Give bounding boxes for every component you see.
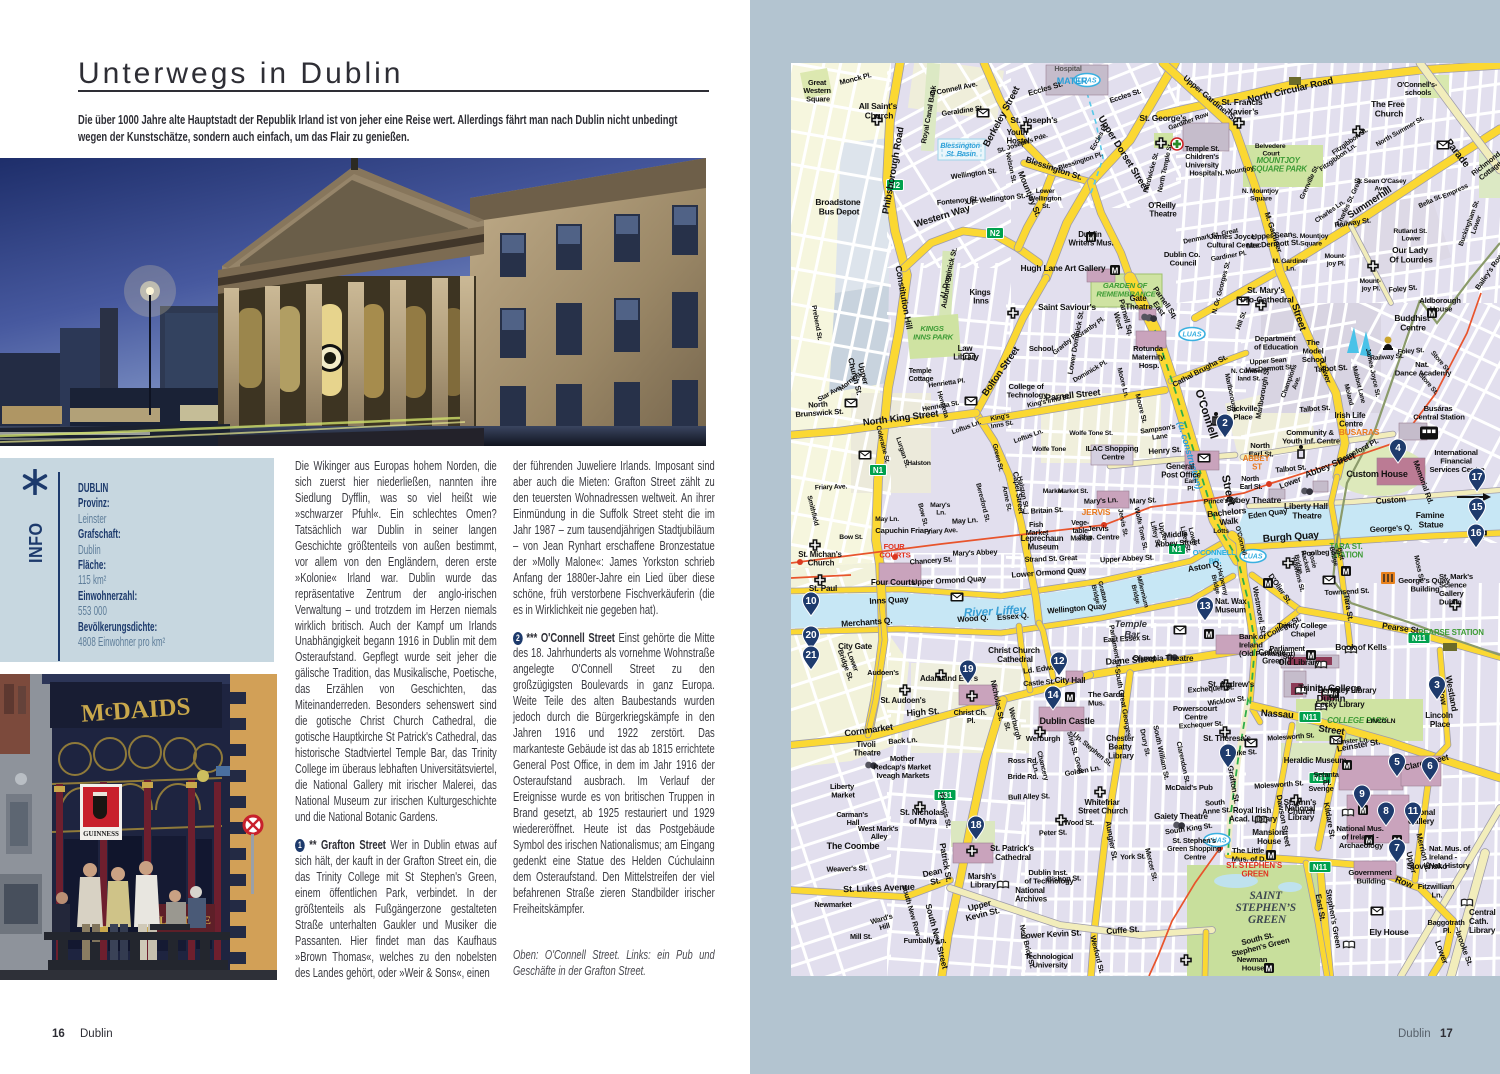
svg-text:Famine Statue: Famine Statue (1416, 510, 1447, 529)
svg-text:Whitefriar Street Church: Whitefriar Street Church (1078, 798, 1128, 816)
svg-text:Heraldic Museum: Heraldic Museum (1284, 756, 1347, 765)
svg-text:Newmarket: Newmarket (814, 900, 852, 909)
svg-text:20: 20 (805, 630, 817, 641)
svg-text:Lotts: Lotts (1213, 528, 1229, 535)
svg-text:N11: N11 (1313, 863, 1328, 872)
svg-text:PEARSE STATION: PEARSE STATION (1418, 628, 1484, 637)
svg-text:Mary's Ln.: Mary's Ln. (1084, 495, 1119, 506)
svg-text:N1: N1 (873, 466, 884, 475)
svg-text:Friary Ave.: Friary Ave. (815, 483, 848, 491)
svg-text:Four Courts: Four Courts (871, 578, 916, 587)
svg-text:Slovensko: Slovensko (1407, 861, 1448, 871)
svg-text:National Archives: National Archives (1015, 886, 1048, 904)
svg-text:North Earl St.: North Earl St. (1240, 476, 1263, 491)
svg-text:St. Mary's Pro-Cathedral: St. Mary's Pro-Cathedral (1240, 285, 1293, 304)
svg-text:Ely House: Ely House (1369, 927, 1409, 937)
svg-text:11: 11 (1408, 806, 1419, 817)
svg-text:Weaver's St.: Weaver's St. (826, 863, 867, 873)
svg-text:Werburgh: Werburgh (1026, 734, 1061, 743)
svg-text:9: 9 (1359, 789, 1365, 800)
svg-text:14: 14 (1047, 690, 1059, 701)
svg-text:Nat. Wax Museum: Nat. Wax Museum (1215, 597, 1249, 615)
svg-text:The Coombe: The Coombe (827, 841, 880, 851)
svg-text:Liberty Market: Liberty Market (830, 782, 856, 799)
svg-text:May Ln.: May Ln. (875, 516, 899, 523)
svg-text:3: 3 (1434, 680, 1440, 691)
svg-text:Tivoli Theatre: Tivoli Theatre (853, 740, 881, 758)
svg-text:1: 1 (1225, 748, 1231, 759)
svg-text:Gaiety Theatre: Gaiety Theatre (1154, 812, 1208, 821)
svg-text:MOUNTJOY SQUARE PARK: MOUNTJOY SQUARE PARK (1251, 156, 1308, 174)
svg-text:City Hall: City Hall (1055, 676, 1086, 685)
svg-text:All Saint's Church: All Saint's Church (859, 101, 900, 120)
svg-text:Bull Alley St.: Bull Alley St. (1008, 791, 1050, 801)
svg-text:4: 4 (1395, 443, 1401, 454)
svg-text:19: 19 (962, 664, 974, 675)
svg-text:Mary's Abbey: Mary's Abbey (952, 547, 998, 558)
svg-text:Hospital: Hospital (1054, 64, 1081, 73)
svg-text:Wolfe Tone St.: Wolfe Tone St. (1069, 430, 1113, 437)
svg-text:7: 7 (1394, 843, 1400, 854)
svg-text:Sverige: Sverige (1308, 784, 1333, 793)
svg-text:Mary St.: Mary St. (1129, 495, 1157, 505)
svg-text:St. Audoen's: St. Audoen's (880, 696, 926, 705)
svg-text:FOUR COURTS: FOUR COURTS (879, 542, 910, 559)
svg-text:21: 21 (805, 650, 817, 661)
svg-text:Broadstone Bus Depot: Broadstone Bus Depot (815, 197, 862, 216)
svg-text:Hugh Lane Art Gallery: Hugh Lane Art Gallery (1021, 263, 1106, 273)
svg-text:N2: N2 (990, 229, 1001, 238)
svg-text:MATER: MATER (1057, 76, 1088, 86)
svg-text:National Mus. of Ireland - Arc: National Mus. of Ireland - Archaeology (1336, 824, 1385, 850)
svg-text:6: 6 (1427, 761, 1433, 772)
svg-text:GUINNESS: GUINNESS (83, 830, 119, 838)
svg-text:McDaid's Pub: McDaid's Pub (1165, 783, 1213, 792)
svg-text:Inns Quay: Inns Quay (869, 594, 909, 606)
svg-text:Capuchin Friary: Capuchin Friary (875, 526, 931, 535)
svg-text:Community & Youth Inf. Centre: Community & Youth Inf. Centre (1282, 428, 1340, 445)
svg-text:Saint Saviour's: Saint Saviour's (1038, 302, 1096, 312)
svg-text:St. Paul: St. Paul (809, 584, 837, 593)
svg-text:Custom: Custom (1375, 494, 1406, 506)
svg-text:St. Patrick's Cathedral: St. Patrick's Cathedral (990, 844, 1036, 862)
svg-text:Halston: Halston (907, 460, 930, 467)
svg-text:York St.: York St. (1120, 852, 1146, 862)
svg-text:Nassau: Nassau (1260, 708, 1294, 721)
svg-text:JERVIS: JERVIS (1082, 507, 1111, 517)
svg-text:Dublin Castle: Dublin Castle (1039, 716, 1094, 726)
svg-text:Our Lady Of Lourdes: Our Lady Of Lourdes (1389, 245, 1433, 264)
svg-text:10: 10 (805, 596, 817, 607)
svg-text:Lecky Library: Lecky Library (1316, 700, 1366, 709)
svg-text:16: 16 (1470, 528, 1482, 539)
svg-text:The Free Church: The Free Church (1371, 99, 1407, 118)
svg-text:Wolfe Tone: Wolfe Tone (1032, 446, 1066, 453)
svg-text:Mount- joy Pl.: Mount- joy Pl. (1324, 253, 1347, 268)
svg-text:LINCOLN: LINCOLN (1367, 718, 1396, 725)
svg-text:2: 2 (1222, 418, 1228, 429)
svg-text:College of Technology: College of Technology (1007, 382, 1048, 399)
svg-text:Temple St. Children's Universi: Temple St. Children's University Hospita… (1185, 144, 1221, 177)
svg-text:17: 17 (1471, 472, 1483, 483)
svg-text:Department of Education: Department of Education (1254, 334, 1299, 351)
svg-text:N11: N11 (1303, 713, 1318, 722)
svg-text:Wood St.: Wood St. (1064, 818, 1094, 827)
svg-text:St. Joseph's: St. Joseph's (1010, 115, 1058, 125)
svg-text:Vege- table Market: Vege- table Market (1070, 520, 1092, 543)
svg-text:Bow St.: Bow St. (839, 534, 863, 541)
svg-text:Blessington St. Basin: Blessington St. Basin (940, 141, 982, 158)
svg-text:Mount- joy Pl.: Mount- joy Pl. (1359, 278, 1382, 293)
svg-text:15: 15 (1471, 502, 1483, 513)
svg-text:13: 13 (1199, 601, 1211, 612)
svg-text:School: School (1029, 344, 1053, 353)
svg-text:Chester Beatty Library: Chester Beatty Library (1106, 734, 1136, 760)
svg-text:Market St.: Market St. (1058, 488, 1089, 495)
svg-text:Book of Kells: Book of Kells (1335, 642, 1387, 652)
svg-text:Audoen's: Audoen's (867, 668, 899, 677)
svg-text:Marsh's Library: Marsh's Library (968, 872, 998, 890)
svg-text:Mill St.: Mill St. (850, 932, 872, 941)
svg-text:Bishop St.: Bishop St. (1047, 873, 1082, 883)
svg-text:5: 5 (1394, 757, 1400, 768)
svg-text:O'Reilly Theatre: O'Reilly Theatre (1148, 201, 1178, 219)
svg-text:8: 8 (1383, 806, 1389, 817)
svg-text:Royal Irish Acad. Library: Royal Irish Acad. Library (1229, 806, 1278, 824)
svg-text:BUSARAS: BUSARAS (1339, 427, 1380, 437)
svg-text:Custom House: Custom House (1346, 469, 1408, 479)
svg-text:Berkeley Library: Berkeley Library (1318, 686, 1378, 695)
svg-text:18: 18 (970, 820, 982, 831)
svg-text:National Library: National Library (1285, 804, 1318, 822)
svg-text:Peter St.: Peter St. (1039, 828, 1067, 838)
svg-text:Strand St. Great: Strand St. Great (1024, 553, 1078, 564)
svg-text:Temple Cottage: Temple Cottage (909, 368, 934, 383)
svg-text:St. Theresa's: St. Theresa's (1203, 734, 1251, 743)
svg-text:12: 12 (1053, 656, 1065, 667)
svg-text:May Ln.: May Ln. (952, 515, 979, 526)
